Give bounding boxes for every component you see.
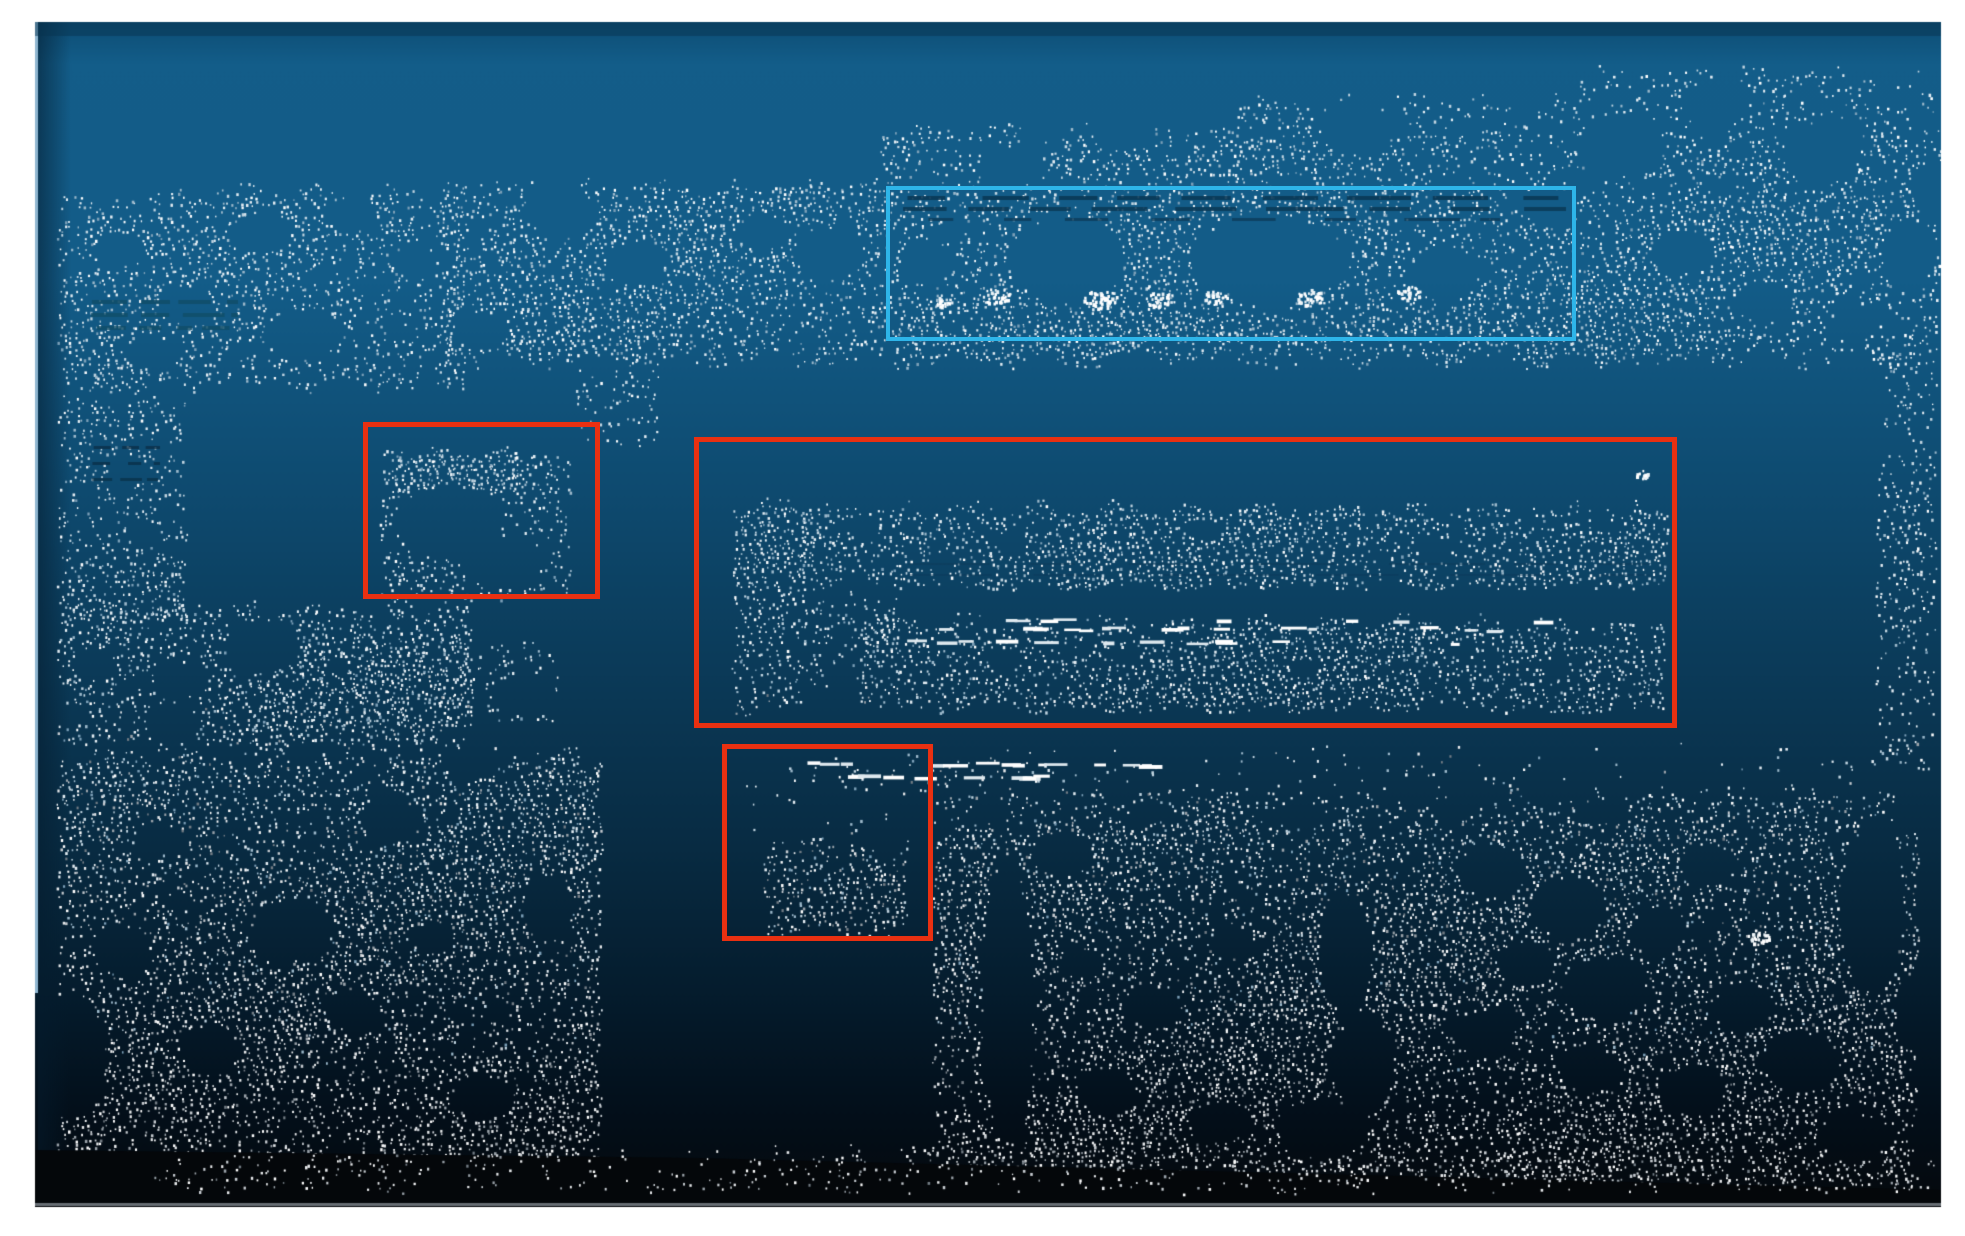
pointcloud-canvas — [0, 0, 1965, 1236]
pointcloud-figure — [0, 0, 1965, 1236]
